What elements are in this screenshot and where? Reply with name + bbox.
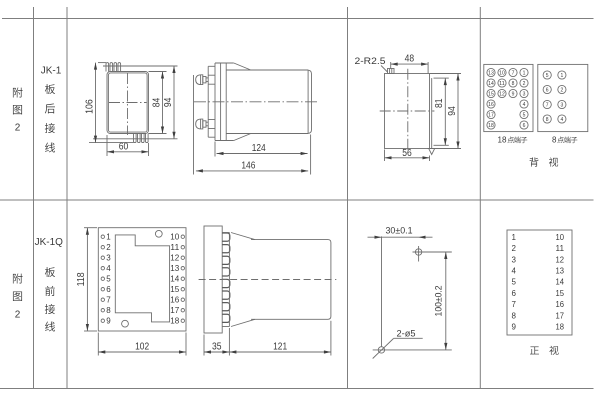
- svg-text:8: 8: [552, 136, 557, 145]
- svg-text:146: 146: [241, 160, 255, 171]
- svg-text:12: 12: [556, 255, 565, 264]
- svg-text:8: 8: [106, 306, 111, 315]
- svg-text:118: 118: [76, 272, 87, 286]
- svg-text:3: 3: [512, 255, 517, 264]
- svg-text:1: 1: [561, 73, 564, 79]
- svg-text:8: 8: [512, 311, 517, 320]
- svg-text:56: 56: [402, 148, 412, 159]
- svg-text:2: 2: [561, 87, 564, 93]
- svg-text:18: 18: [170, 317, 180, 326]
- svg-text:8: 8: [546, 117, 549, 123]
- svg-text:4: 4: [106, 264, 111, 273]
- svg-text:18: 18: [498, 136, 508, 145]
- svg-text:124: 124: [252, 143, 266, 154]
- svg-text:14: 14: [556, 278, 565, 287]
- svg-text:2: 2: [106, 243, 111, 252]
- svg-text:15: 15: [170, 285, 180, 294]
- svg-text:6: 6: [106, 285, 111, 294]
- svg-text:2: 2: [512, 244, 517, 253]
- svg-text:100±0.2: 100±0.2: [433, 285, 443, 316]
- svg-text:9: 9: [512, 323, 517, 332]
- svg-text:1: 1: [512, 233, 517, 242]
- svg-text:12: 12: [170, 254, 180, 263]
- svg-text:6: 6: [512, 289, 517, 298]
- svg-text:16: 16: [488, 102, 494, 108]
- svg-text:14: 14: [488, 81, 494, 87]
- svg-text:102: 102: [135, 342, 149, 353]
- svg-text:18: 18: [488, 123, 494, 129]
- svg-text:30±0.1: 30±0.1: [386, 226, 413, 236]
- svg-text:6: 6: [546, 87, 549, 93]
- svg-text:15: 15: [488, 91, 494, 97]
- svg-text:6: 6: [523, 123, 526, 129]
- svg-text:17: 17: [170, 306, 180, 315]
- svg-text:9: 9: [512, 91, 515, 97]
- svg-text:7: 7: [512, 70, 515, 76]
- svg-text:5: 5: [546, 73, 549, 79]
- svg-text:84: 84: [152, 97, 163, 107]
- svg-text:14: 14: [170, 275, 180, 284]
- svg-text:17: 17: [488, 112, 494, 118]
- svg-text:10: 10: [170, 233, 180, 242]
- svg-text:94: 94: [163, 97, 174, 107]
- svg-text:7: 7: [106, 296, 111, 305]
- svg-text:2: 2: [15, 310, 21, 321]
- svg-text:5: 5: [512, 278, 517, 287]
- svg-text:5: 5: [106, 275, 111, 284]
- svg-text:15: 15: [556, 289, 565, 298]
- svg-text:121: 121: [273, 342, 287, 353]
- svg-text:13: 13: [170, 264, 180, 273]
- svg-text:5: 5: [523, 112, 526, 118]
- svg-text:81: 81: [434, 98, 445, 108]
- svg-text:16: 16: [556, 300, 565, 309]
- svg-text:2: 2: [523, 81, 526, 87]
- svg-text:1: 1: [106, 233, 111, 242]
- svg-text:JK-1: JK-1: [41, 66, 62, 77]
- svg-text:3: 3: [523, 91, 526, 97]
- svg-text:16: 16: [170, 296, 180, 305]
- svg-text:2-R2.5: 2-R2.5: [355, 56, 386, 66]
- svg-text:4: 4: [561, 117, 564, 123]
- svg-text:2-ø5: 2-ø5: [397, 328, 416, 338]
- svg-text:94: 94: [447, 106, 458, 116]
- svg-text:48: 48: [405, 54, 415, 65]
- svg-text:8: 8: [512, 81, 515, 87]
- svg-text:13: 13: [488, 70, 494, 76]
- svg-text:18: 18: [556, 323, 565, 332]
- svg-text:13: 13: [556, 266, 565, 275]
- svg-text:1: 1: [523, 70, 526, 76]
- svg-text:9: 9: [106, 317, 111, 326]
- svg-text:JK-1Q: JK-1Q: [35, 237, 64, 248]
- svg-text:7: 7: [512, 300, 517, 309]
- svg-text:4: 4: [512, 266, 517, 275]
- svg-text:7: 7: [546, 102, 549, 108]
- svg-text:11: 11: [556, 244, 565, 253]
- svg-text:35: 35: [212, 342, 222, 353]
- svg-text:17: 17: [556, 311, 565, 320]
- svg-text:2: 2: [15, 123, 21, 134]
- svg-text:11: 11: [499, 81, 505, 87]
- svg-text:12: 12: [499, 91, 505, 97]
- svg-text:3: 3: [106, 254, 111, 263]
- svg-text:10: 10: [556, 233, 565, 242]
- svg-text:106: 106: [85, 99, 96, 114]
- svg-text:10: 10: [499, 70, 505, 76]
- svg-text:11: 11: [170, 243, 180, 252]
- svg-text:60: 60: [119, 141, 129, 152]
- svg-text:3: 3: [561, 102, 564, 108]
- svg-text:4: 4: [523, 102, 526, 108]
